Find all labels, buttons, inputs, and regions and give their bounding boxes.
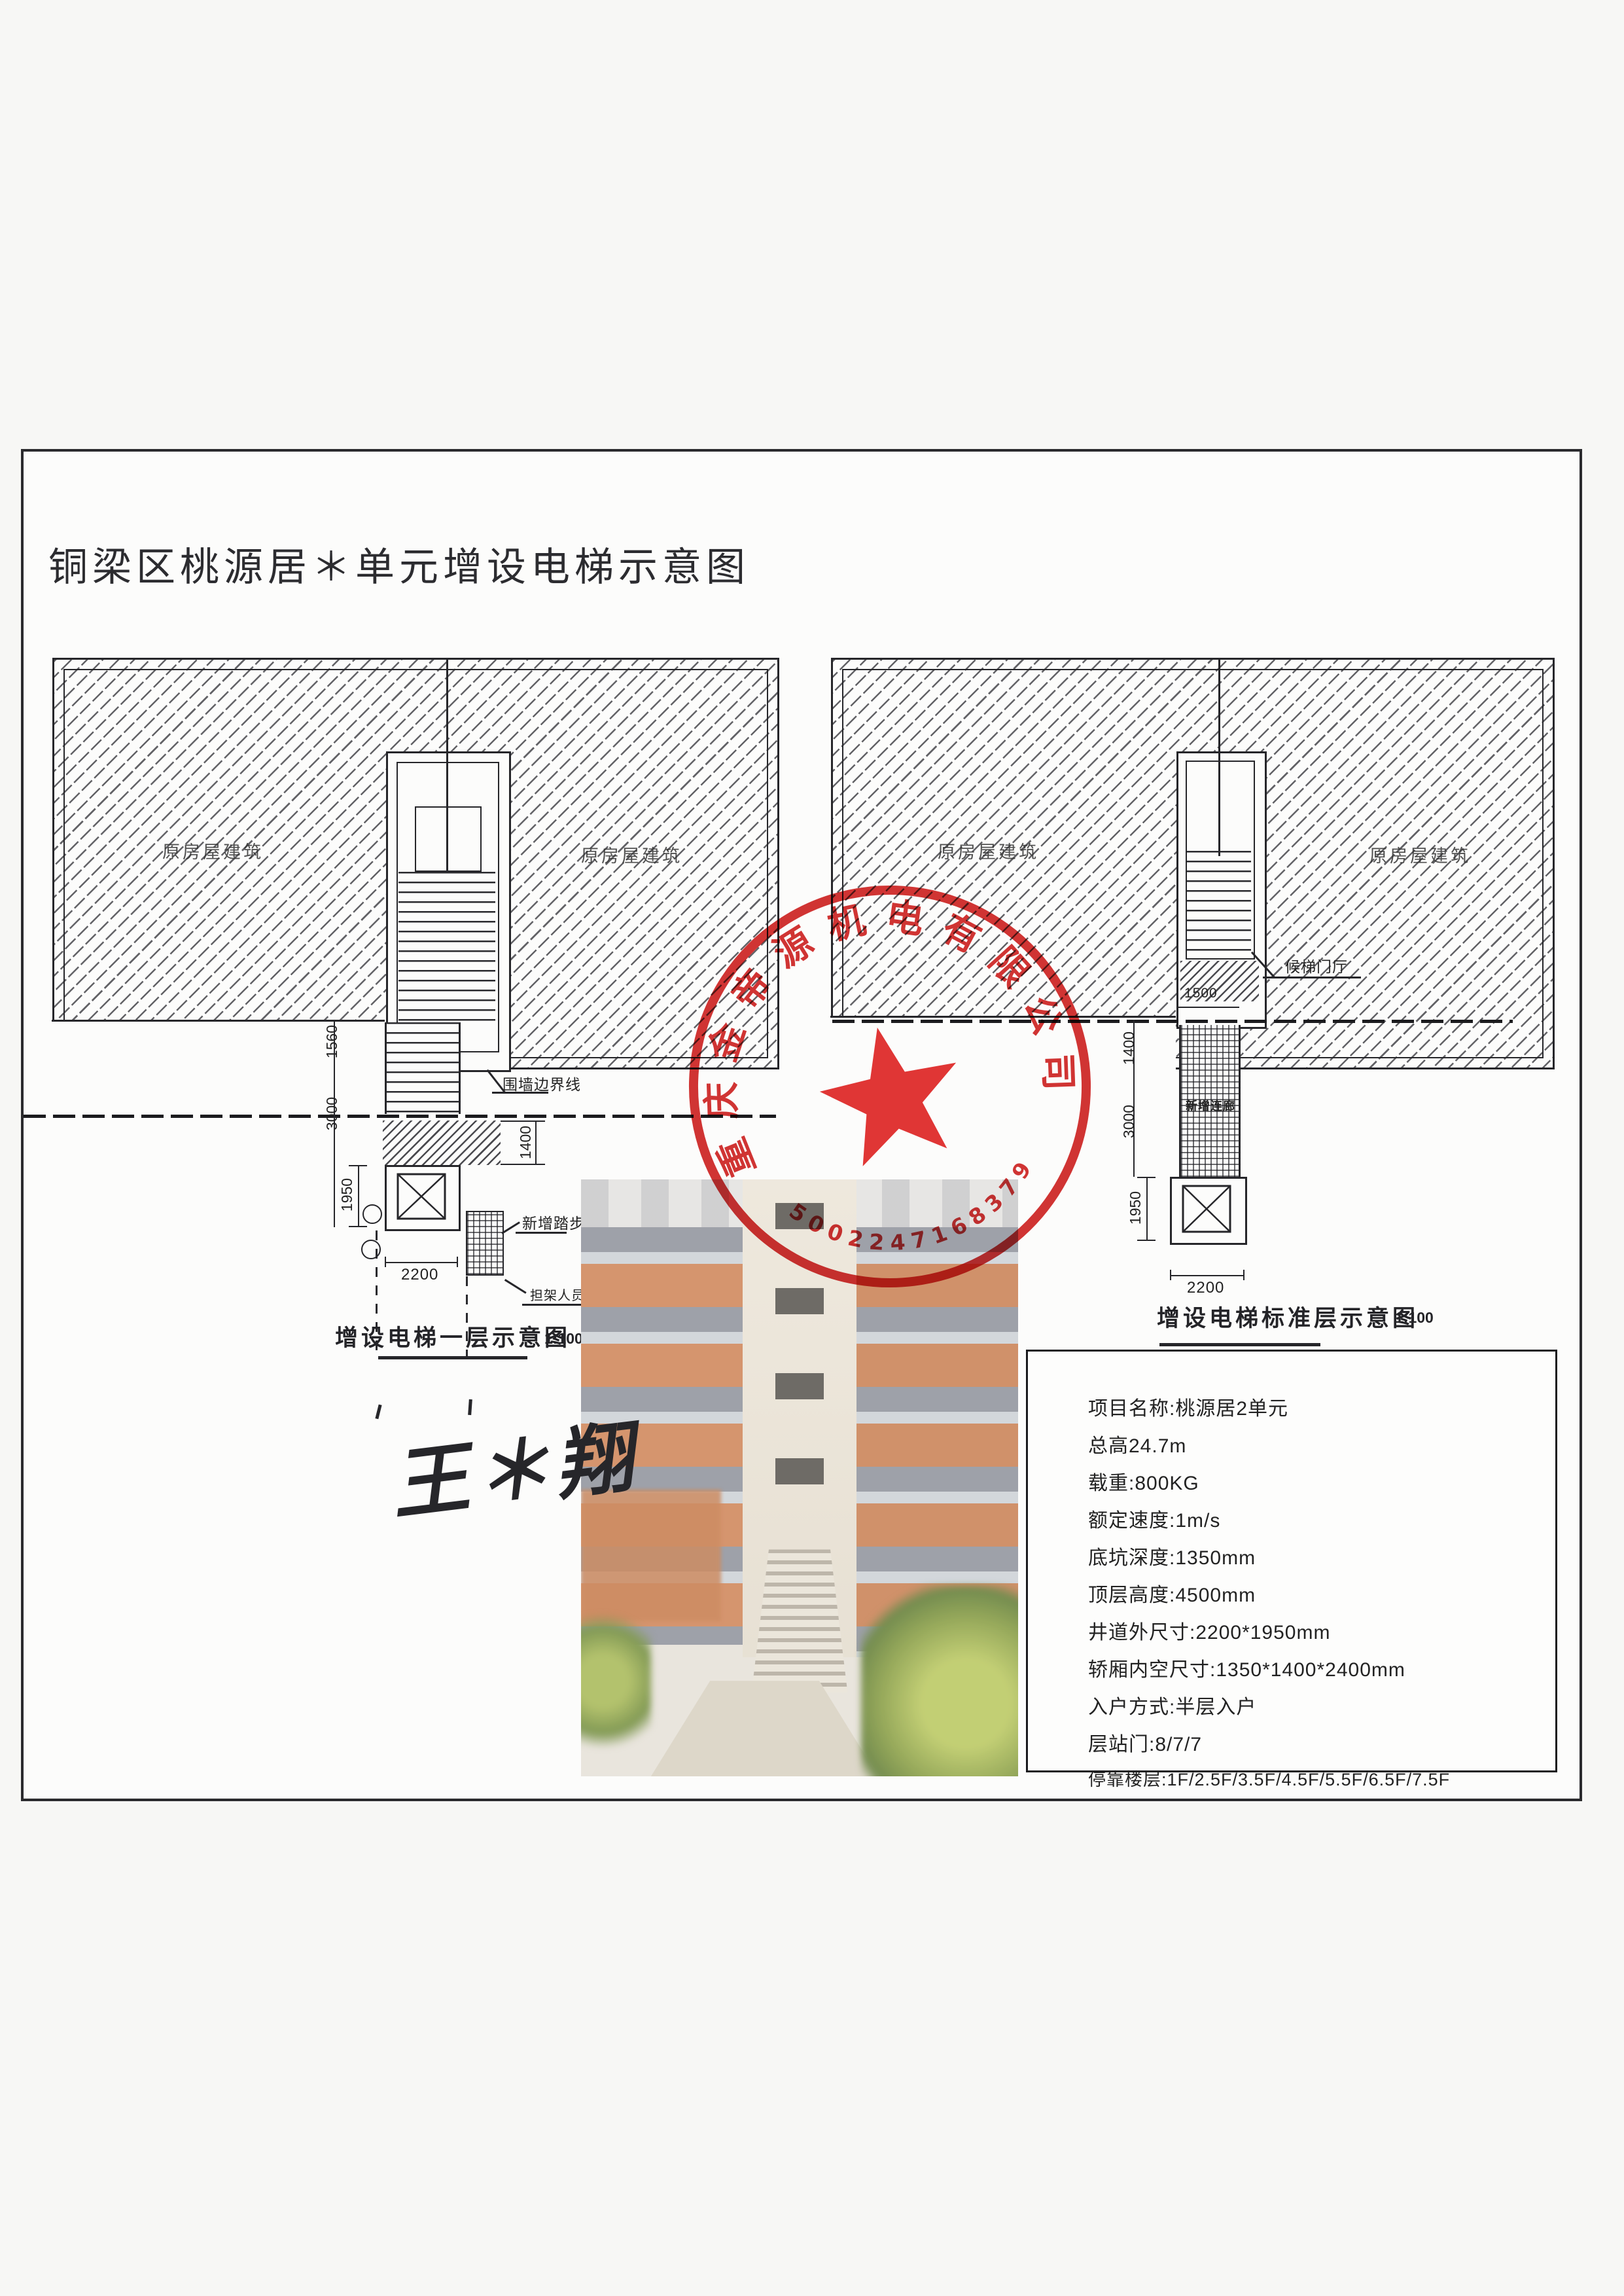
leader-hall-label: 候梯门厅 <box>1285 954 1348 977</box>
dim-line <box>358 1165 359 1227</box>
spec-line: 项目名称:桃源居2单元 <box>1088 1392 1288 1421</box>
dim-platform: 1400 <box>517 1126 535 1159</box>
left-plan-caption: 增设电梯一层示意图 <box>335 1319 571 1353</box>
building-label: 原房屋建筑 <box>581 842 682 867</box>
left-entry-platform-hatch <box>383 1121 501 1165</box>
dim-line <box>1133 1020 1135 1177</box>
spec-line: 额定速度:1m/s <box>1088 1504 1220 1533</box>
dim-tick <box>457 1257 458 1267</box>
left-stair-landing <box>415 806 482 872</box>
left-boundary-line <box>24 1115 776 1118</box>
dim-wall: 1560 <box>323 1025 341 1058</box>
left-stair-steps <box>398 872 495 1021</box>
right-elevator-car <box>1182 1185 1231 1233</box>
leader-steps-label: 新增踏步 <box>522 1211 585 1233</box>
dim-offset: 3000 <box>323 1097 341 1130</box>
right-plan-scale: 1:100 <box>1395 1309 1434 1327</box>
dim-tick <box>349 1165 367 1166</box>
building-label: 原房屋建筑 <box>162 838 264 863</box>
dim-width: 2200 <box>1187 1279 1224 1297</box>
grid-bubble <box>362 1204 382 1224</box>
dim-extension-line <box>501 1164 545 1165</box>
corridor-label: 新增连廊 <box>1186 1097 1235 1114</box>
dim-tick <box>349 1226 367 1227</box>
leader-line <box>1263 977 1361 978</box>
spec-line: 停靠楼层:1F/2.5F/3.5F/4.5F/5.5F/6.5F/7.5F <box>1088 1765 1450 1791</box>
dim-width: 2200 <box>401 1266 438 1284</box>
spec-line: 顶层高度:4500mm <box>1088 1579 1256 1607</box>
spec-line: 入户方式:半层入户 <box>1088 1691 1256 1719</box>
grid-bubble <box>361 1240 381 1259</box>
left-new-steps <box>466 1211 504 1276</box>
spec-line: 总高24.7m <box>1088 1429 1186 1458</box>
dim-line <box>334 1020 335 1227</box>
caption-underline <box>1159 1343 1320 1346</box>
caption-underline <box>378 1356 527 1359</box>
spec-line: 底坑深度:1350mm <box>1088 1541 1256 1570</box>
spec-line: 轿厢内空尺寸:1350*1400*2400mm <box>1088 1653 1405 1682</box>
dim-tick <box>1170 1270 1171 1280</box>
dim-tick <box>1137 1177 1156 1178</box>
spec-table: 项目名称:桃源居2单元 总高24.7m 载重:800KG 额定速度:1m/s 底… <box>1026 1350 1557 1772</box>
right-party-wall-line <box>1218 660 1220 856</box>
dim-line <box>535 1121 537 1165</box>
dim-corridor-length: 3000 <box>1120 1105 1138 1138</box>
drawing-title: 铜梁区桃源居＊单元增设电梯示意图 <box>48 535 750 592</box>
dim-line <box>1146 1177 1148 1241</box>
spec-line: 载重:800KG <box>1088 1467 1199 1496</box>
dim-line <box>385 1262 458 1263</box>
right-stair-steps <box>1187 851 1251 957</box>
dim-wall: 1400 <box>1120 1031 1138 1065</box>
company-stamp: 重庆金帝源机电有限公司 5002247168379 <box>634 831 1146 1343</box>
right-plan-caption: 增设电梯标准层示意图 <box>1157 1300 1419 1333</box>
stamp-serial-number: 5002247168379 <box>781 1147 1052 1279</box>
dim-depth: 1950 <box>338 1178 356 1211</box>
dim-line <box>1170 1275 1244 1276</box>
leader-line <box>516 1232 567 1234</box>
dim-line <box>1176 1007 1239 1008</box>
dim-tick <box>1243 1270 1244 1280</box>
spec-line: 层站门:8/7/7 <box>1088 1728 1202 1757</box>
left-elevator-car <box>397 1173 446 1220</box>
stamp-star-icon <box>809 1013 973 1172</box>
dim-corridor-width: 1500 <box>1184 986 1218 1001</box>
dim-tick <box>385 1257 386 1267</box>
dim-extension-line <box>501 1121 545 1122</box>
svg-text:5002247168379: 5002247168379 <box>781 1147 1052 1279</box>
building-label: 原房屋建筑 <box>1369 842 1471 867</box>
leader-line <box>492 1092 548 1094</box>
left-plan-scale: 1:100 <box>544 1330 583 1348</box>
leader-boundary-label: 围墙边界线 <box>503 1072 581 1094</box>
spec-line: 井道外尺寸:2200*1950mm <box>1088 1616 1330 1645</box>
left-exterior-stairs <box>385 1022 461 1114</box>
